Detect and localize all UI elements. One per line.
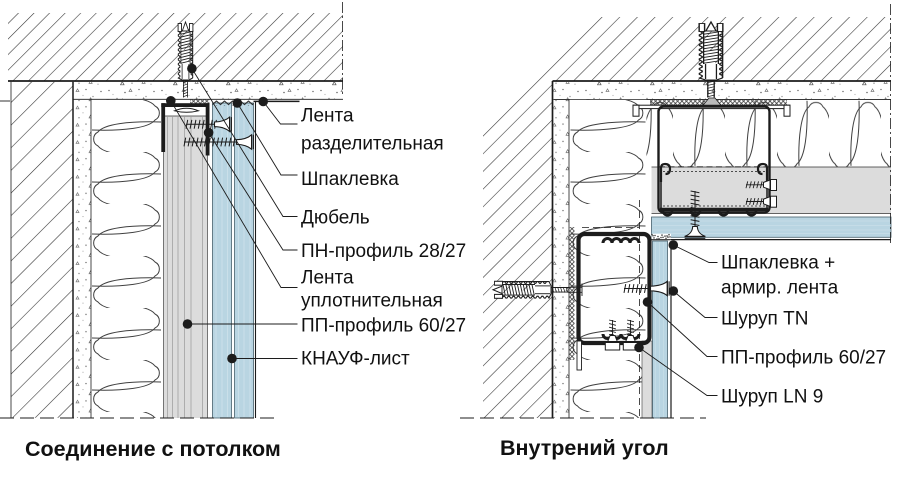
svg-text:Шуруп TN: Шуруп TN (721, 309, 808, 330)
svg-text:Лента: Лента (301, 106, 354, 127)
svg-text:Дюбель: Дюбель (301, 208, 370, 229)
svg-text:ПП-профиль 60/27: ПП-профиль 60/27 (301, 316, 466, 337)
svg-text:Внутрений угол: Внутрений угол (500, 436, 669, 460)
svg-text:Шпаклевка +: Шпаклевка + (721, 253, 835, 274)
svg-text:ПН-профиль 28/27: ПН-профиль 28/27 (301, 241, 466, 262)
svg-text:Шпаклевка: Шпаклевка (301, 169, 399, 190)
svg-text:КНАУФ-лист: КНАУФ-лист (301, 349, 410, 370)
svg-text:ПП-профиль 60/27: ПП-профиль 60/27 (721, 348, 886, 369)
svg-text:разделительная: разделительная (301, 134, 444, 155)
svg-text:Соединение с потолком: Соединение с потолком (25, 437, 281, 461)
svg-text:армир. лента: армир. лента (721, 278, 839, 299)
svg-text:Шуруп LN 9: Шуруп LN 9 (721, 387, 823, 408)
svg-text:уплотнительная: уплотнительная (301, 291, 443, 312)
svg-text:Лента: Лента (301, 268, 354, 289)
